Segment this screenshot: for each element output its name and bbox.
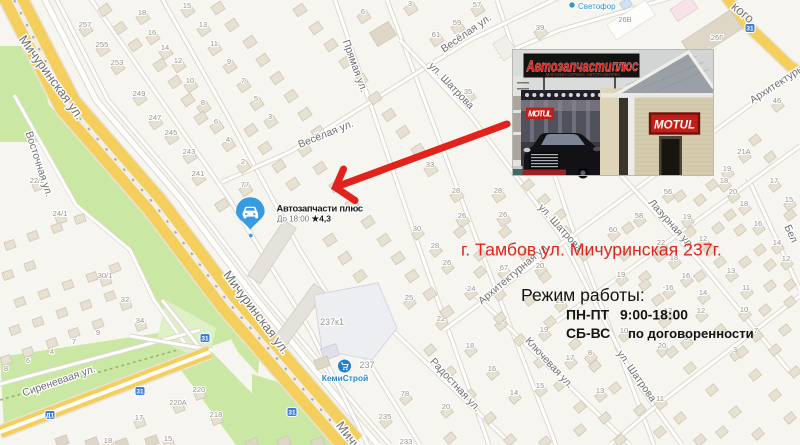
svg-text:59: 59 [453,18,461,27]
svg-text:26В: 26В [618,15,632,24]
svg-text:243: 243 [183,147,196,156]
svg-text:12: 12 [174,56,182,65]
svg-text:8: 8 [4,364,8,373]
svg-text:46: 46 [773,96,781,105]
svg-text:11: 11 [742,283,750,292]
svg-text:Светофор: Светофор [578,2,616,11]
svg-text:34: 34 [136,316,144,325]
svg-text:15: 15 [785,195,793,204]
svg-text:235: 235 [379,412,392,421]
svg-text:237к1: 237к1 [320,317,344,327]
svg-text:9: 9 [96,328,100,337]
svg-text:31: 31 [746,26,754,33]
svg-text:20: 20 [536,261,544,270]
svg-text:20: 20 [729,187,737,196]
svg-text:28: 28 [452,186,460,195]
svg-text:6: 6 [214,117,218,126]
svg-text:18: 18 [138,8,146,17]
svg-text:26: 26 [499,210,507,219]
svg-text:233: 233 [400,437,413,445]
svg-text:30: 30 [413,224,421,233]
svg-text:32: 32 [121,295,129,304]
svg-text:20: 20 [658,341,666,350]
svg-text:78: 78 [401,389,409,398]
svg-text:3: 3 [408,0,412,8]
svg-text:Д1: Д1 [46,413,55,420]
svg-text:Автозапчасти плюс: Автозапчасти плюс [277,203,363,214]
svg-text:56: 56 [664,187,672,196]
svg-text:10: 10 [186,76,194,85]
svg-text:7: 7 [72,337,76,346]
svg-text:237: 237 [359,360,374,370]
svg-text:До 18:00: До 18:00 [277,215,310,224]
svg-text:218: 218 [210,410,223,419]
svg-text:33: 33 [426,160,434,169]
svg-text:15: 15 [164,434,172,443]
svg-text:15: 15 [536,381,544,390]
svg-text:4: 4 [50,347,54,356]
svg-text:MOTUL: MOTUL [654,120,695,132]
svg-text:-24: -24 [465,284,476,293]
svg-text:6: 6 [361,7,365,16]
svg-text:Режим работы:: Режим работы: [521,285,645,305]
svg-text:10: 10 [620,326,628,335]
svg-text:16: 16 [488,364,496,373]
svg-text:14: 14 [773,238,781,247]
svg-text:19: 19 [683,212,691,221]
svg-text:39: 39 [536,23,544,32]
svg-text:14: 14 [699,288,707,297]
svg-text:25: 25 [405,293,413,302]
svg-text:12: 12 [697,306,705,315]
svg-text:61: 61 [432,30,440,39]
svg-text:6: 6 [26,356,30,365]
svg-text:245: 245 [165,128,178,137]
svg-text:60: 60 [609,225,617,234]
svg-text:241: 241 [192,169,205,178]
svg-text:18: 18 [740,199,748,208]
svg-text:247: 247 [149,113,162,122]
svg-text:10: 10 [740,305,748,314]
svg-text:14: 14 [510,388,518,397]
svg-text:7: 7 [754,326,758,335]
svg-text:257: 257 [79,20,92,29]
svg-text:11: 11 [210,39,218,48]
svg-text:19: 19 [723,164,731,173]
svg-text:17: 17 [135,413,143,422]
svg-text:2: 2 [241,157,245,166]
svg-text:253: 253 [111,58,124,67]
svg-text:12: 12 [782,254,790,263]
svg-text:20: 20 [442,402,450,411]
svg-text:77: 77 [241,180,249,189]
svg-text:-16: -16 [663,283,674,292]
svg-text:31: 31 [288,410,296,417]
svg-text:СБ-ВСпо договоренности: СБ-ВСпо договоренности [566,325,754,341]
svg-text:16: 16 [754,219,762,228]
svg-text:3: 3 [268,112,272,121]
svg-text:КемиСтрой: КемиСтрой [322,373,369,383]
svg-text:28: 28 [431,241,439,250]
svg-text:19: 19 [617,270,625,279]
svg-text:14: 14 [161,43,169,52]
svg-text:13: 13 [727,266,735,275]
svg-text:7: 7 [241,76,245,85]
svg-text:220: 220 [193,385,206,394]
svg-text:26: 26 [443,258,451,267]
svg-text:8: 8 [588,348,592,357]
svg-text:4: 4 [226,135,230,144]
svg-text:17: 17 [566,353,574,362]
svg-text:★4,3: ★4,3 [312,214,332,224]
svg-text:57: 57 [473,0,481,9]
svg-text:15: 15 [183,1,191,10]
svg-text:28: 28 [494,186,502,195]
svg-text:16: 16 [148,28,156,37]
svg-text:58: 58 [635,211,643,220]
svg-text:26Г: 26Г [711,33,724,42]
svg-text:220А: 220А [169,398,188,407]
svg-text:13: 13 [199,20,207,29]
svg-text:31: 31 [201,336,209,343]
svg-text:17: 17 [770,176,778,185]
svg-text:9: 9 [227,57,231,66]
svg-text:255: 255 [96,40,109,49]
svg-text:13: 13 [596,386,604,395]
svg-text:26: 26 [458,211,466,220]
svg-text:г. Тамбов ул. Мичуринская 237г: г. Тамбов ул. Мичуринская 237г. [461,240,722,260]
svg-text:18: 18 [104,436,112,445]
svg-text:5: 5 [254,94,258,103]
svg-text:31: 31 [136,389,144,396]
svg-text:16: 16 [682,271,690,280]
svg-text:8: 8 [201,98,205,107]
svg-text:MOTUL: MOTUL [528,110,552,119]
svg-text:249: 249 [133,89,146,98]
svg-text:МАГАЗИН·СЕРВИС·АВТОРАЗБОРКА: МАГАЗИН·СЕРВИС·АВТОРАЗБОРКА [546,72,621,77]
svg-text:ПН-ПТ9:00-18:00: ПН-ПТ9:00-18:00 [566,307,688,323]
svg-text:21А: 21А [737,147,751,156]
svg-text:30/1: 30/1 [98,271,113,280]
svg-text:18: 18 [720,176,728,185]
svg-text:18: 18 [466,341,474,350]
svg-text:24/1: 24/1 [53,209,68,218]
